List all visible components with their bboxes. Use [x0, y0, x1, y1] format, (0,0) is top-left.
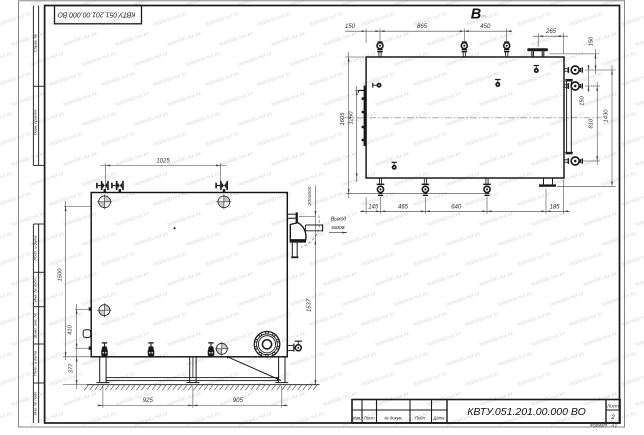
svg-text:Дата: Дата	[432, 416, 445, 421]
svg-text:185: 185	[549, 204, 560, 210]
svg-text:Инв. № дубл.: Инв. № дубл.	[33, 277, 38, 302]
svg-text:Изм.: Изм.	[353, 416, 362, 421]
svg-text:Перв. примен.: Перв. примен.	[33, 109, 38, 136]
svg-text:150: 150	[345, 24, 356, 30]
svg-text:Подп. и дата: Подп. и дата	[33, 235, 38, 261]
svg-text:200х600: 200х600	[307, 186, 313, 206]
svg-text:465: 465	[398, 204, 409, 210]
svg-text:1260: 1260	[348, 111, 354, 125]
svg-text:Формат: Формат	[590, 422, 607, 427]
svg-text:2: 2	[610, 415, 615, 421]
svg-text:Подп. и дата: Подп. и дата	[33, 350, 38, 376]
svg-text:Лист: Лист	[363, 416, 375, 421]
svg-text:А3: А3	[610, 422, 617, 427]
svg-text:905: 905	[233, 398, 244, 404]
svg-text:1605: 1605	[340, 112, 346, 126]
svg-text:640: 640	[451, 204, 462, 210]
svg-text:410: 410	[68, 324, 74, 334]
svg-text:450: 450	[480, 24, 491, 30]
svg-text:В: В	[471, 7, 481, 23]
svg-text:150: 150	[588, 36, 594, 46]
svg-text:145: 145	[368, 204, 379, 210]
svg-text:1025: 1025	[156, 158, 170, 164]
svg-text:Взам. инв. №: Взам. инв. №	[33, 312, 38, 337]
svg-text:(т): (т)	[481, 14, 486, 18]
svg-text:265: 265	[545, 29, 557, 35]
svg-text:Инв. № подл.: Инв. № подл.	[33, 391, 38, 416]
svg-text:1537: 1537	[307, 298, 313, 312]
svg-text:Выход: Выход	[331, 217, 347, 223]
svg-text:КВТУ.051.201.00.000 ВО: КВТУ.051.201.00.000 ВО	[467, 406, 586, 418]
svg-text:150: 150	[580, 95, 586, 105]
svg-text:1500: 1500	[57, 268, 63, 282]
svg-text:865: 865	[417, 24, 428, 30]
svg-text:КВТУ.051.201.00.000 ВО: КВТУ.051.201.00.000 ВО	[57, 11, 135, 18]
svg-text:Лист: Лист	[606, 404, 619, 409]
svg-text:1430: 1430	[603, 109, 609, 123]
svg-text:№ докум.: № докум.	[384, 416, 402, 421]
svg-text:925: 925	[143, 398, 154, 404]
svg-text:377: 377	[69, 363, 75, 373]
svg-text:Подп.: Подп.	[415, 416, 426, 421]
svg-text:Справ. №: Справ. №	[33, 33, 38, 52]
svg-text:810: 810	[589, 118, 595, 128]
svg-text:газов: газов	[331, 225, 345, 231]
